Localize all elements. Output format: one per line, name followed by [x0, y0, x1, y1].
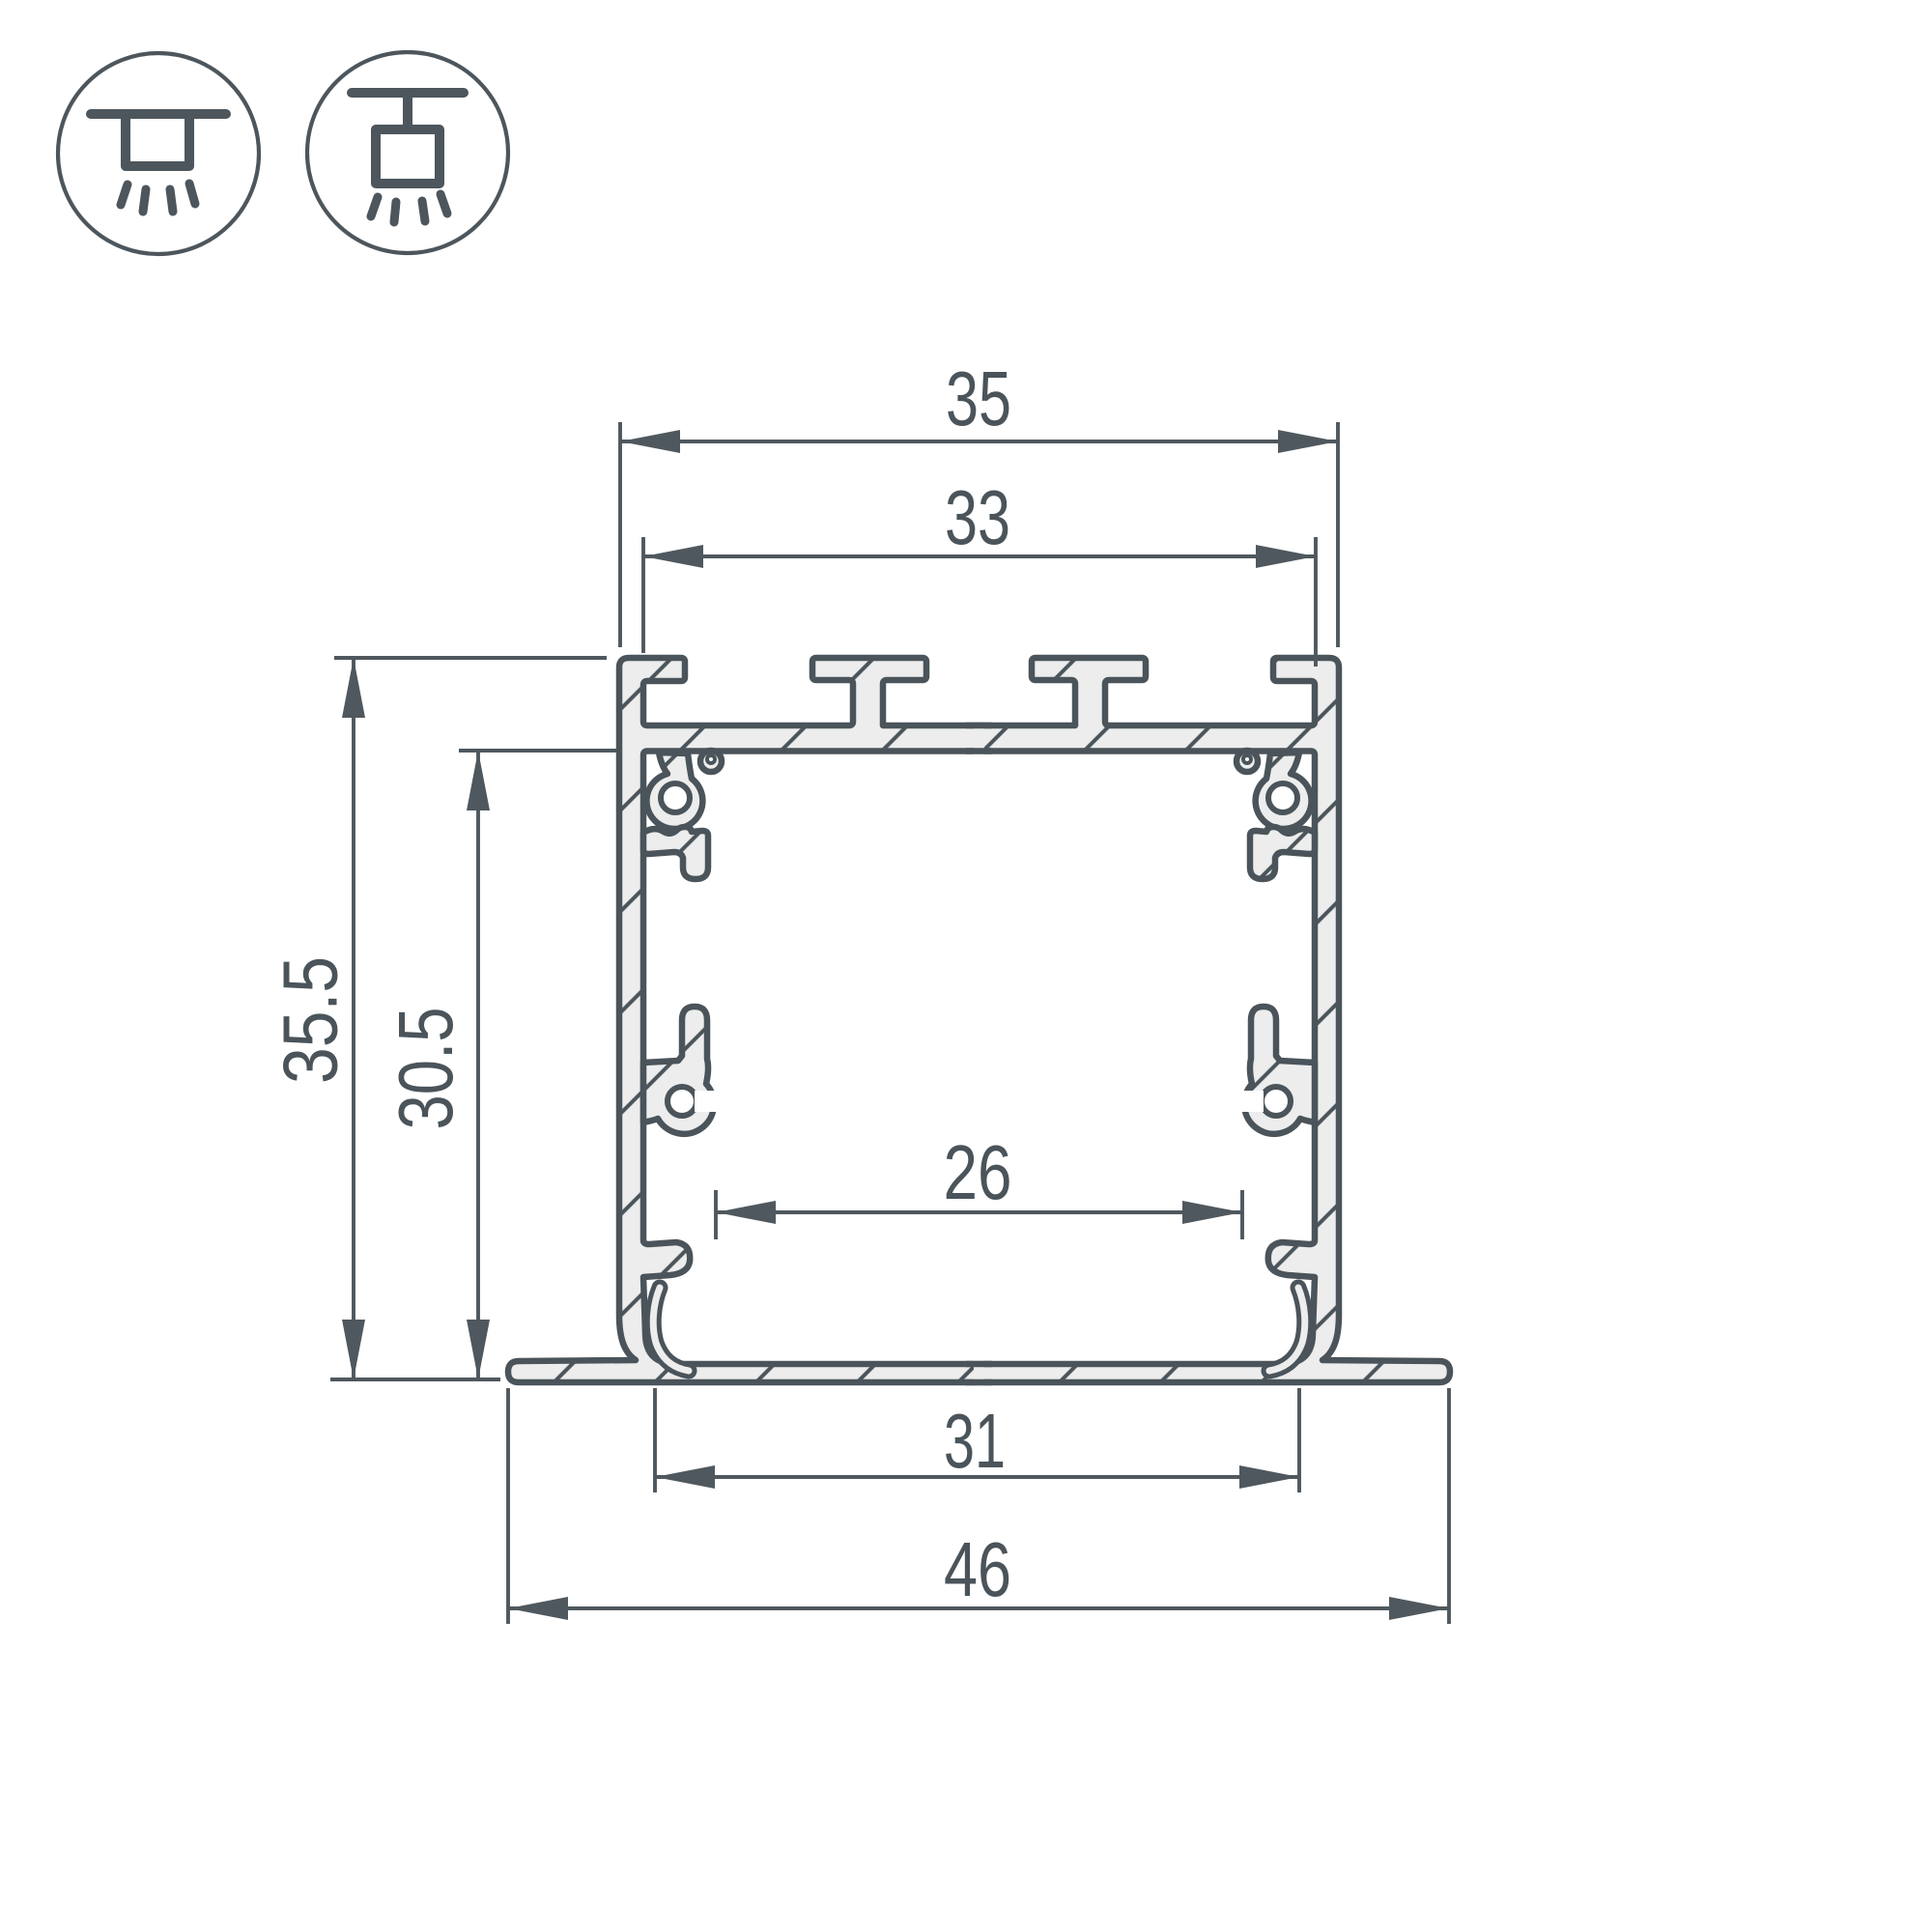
svg-text:33: 33	[945, 474, 1010, 560]
svg-text:46: 46	[944, 1526, 1011, 1612]
svg-text:35: 35	[946, 355, 1011, 441]
svg-text:35.5: 35.5	[268, 956, 354, 1084]
svg-text:26: 26	[944, 1129, 1012, 1215]
svg-text:31: 31	[944, 1398, 1006, 1484]
svg-text:30.5: 30.5	[383, 1008, 469, 1130]
